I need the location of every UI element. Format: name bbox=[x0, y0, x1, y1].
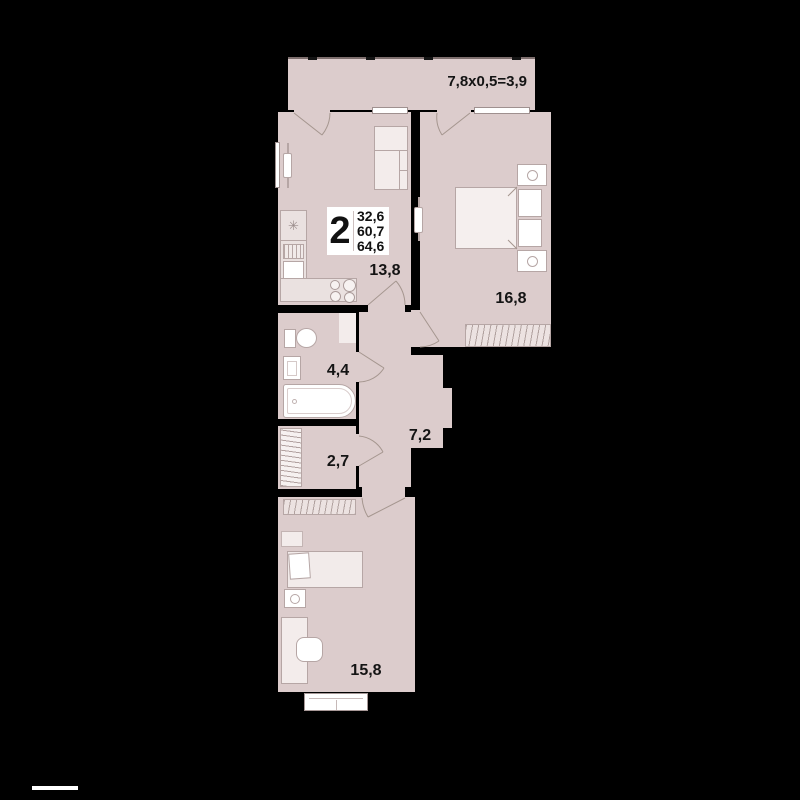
balcony-glazing-tick bbox=[424, 57, 433, 60]
kitchen-radiator bbox=[283, 153, 292, 178]
apartment-info-box: 2 32,6 60,7 64,6 bbox=[327, 207, 389, 255]
bathroom-area-label: 4,4 bbox=[314, 363, 362, 379]
kitchen-appliance bbox=[283, 244, 304, 259]
bedroom-window bbox=[474, 107, 530, 114]
living-room-wardrobe bbox=[283, 499, 356, 515]
bathtub bbox=[283, 384, 356, 418]
bathroom-cabinet bbox=[339, 313, 356, 343]
bedroom-door-opening bbox=[411, 310, 420, 347]
bed-pillow bbox=[288, 552, 311, 579]
balcony-glazing-tick bbox=[308, 57, 317, 60]
cabinet-line bbox=[375, 150, 407, 151]
stove-burner bbox=[330, 280, 340, 290]
living-area-value: 32,6 bbox=[357, 209, 384, 224]
window-frame-mullion bbox=[336, 700, 337, 710]
nightstand bbox=[517, 250, 547, 272]
balcony-dimension-label: 7,8x0,5=3,9 bbox=[390, 73, 527, 90]
storage-shelving bbox=[280, 428, 302, 487]
bed-pillow bbox=[518, 189, 542, 217]
kitchen-area-label: 13,8 bbox=[361, 263, 409, 279]
storage-area-label: 2,7 bbox=[314, 454, 362, 470]
kitchen-door-opening bbox=[368, 305, 405, 313]
toilet-bowl bbox=[296, 328, 317, 348]
bed-double bbox=[455, 187, 517, 249]
living-room-window bbox=[304, 693, 368, 711]
living-room-area-label: 15,8 bbox=[342, 663, 390, 679]
chair bbox=[296, 637, 323, 662]
bathtub-drain bbox=[292, 399, 297, 404]
stove-burner bbox=[330, 291, 341, 302]
nightstand bbox=[284, 589, 306, 608]
room-count: 2 bbox=[327, 209, 353, 253]
total-area-value: 64,6 bbox=[357, 239, 384, 254]
cabinet-line bbox=[399, 170, 407, 171]
kitchen-cabinet bbox=[374, 126, 408, 190]
stove-burner bbox=[343, 279, 356, 292]
entrance-door-opening bbox=[443, 388, 452, 428]
sink-basin-line bbox=[287, 361, 297, 376]
window-frame-line bbox=[309, 694, 363, 699]
usable-area-value: 60,7 bbox=[357, 224, 384, 239]
hallway-area-label: 7,2 bbox=[396, 428, 444, 444]
bedroom-wardrobe bbox=[465, 324, 551, 347]
kitchen-sink: ✳ bbox=[281, 211, 306, 241]
balcony-glazing-tick bbox=[366, 57, 375, 60]
lamp-icon bbox=[527, 256, 538, 267]
bed-pillow bbox=[518, 219, 542, 247]
scale-mark bbox=[32, 786, 78, 790]
kitchen-side-window bbox=[275, 142, 280, 188]
bathroom-sink bbox=[283, 356, 301, 380]
balcony-door-opening-kitchen bbox=[294, 108, 330, 113]
nightstand bbox=[517, 164, 547, 186]
floor-plan: ✳ bbox=[0, 0, 800, 800]
kitchen-window bbox=[372, 107, 408, 114]
stove-burner bbox=[344, 292, 355, 303]
living-room-shelf bbox=[281, 531, 303, 547]
lamp-icon bbox=[527, 170, 538, 181]
hallway-floor bbox=[359, 312, 411, 487]
bedroom-area-label: 16,8 bbox=[487, 291, 535, 307]
lamp-icon bbox=[290, 594, 300, 604]
balcony-door-opening-bedroom bbox=[437, 108, 471, 113]
toilet-tank bbox=[284, 329, 296, 348]
bedroom-radiator bbox=[414, 207, 423, 233]
balcony-glazing-tick bbox=[512, 57, 521, 60]
living-room-door-opening bbox=[362, 487, 405, 497]
